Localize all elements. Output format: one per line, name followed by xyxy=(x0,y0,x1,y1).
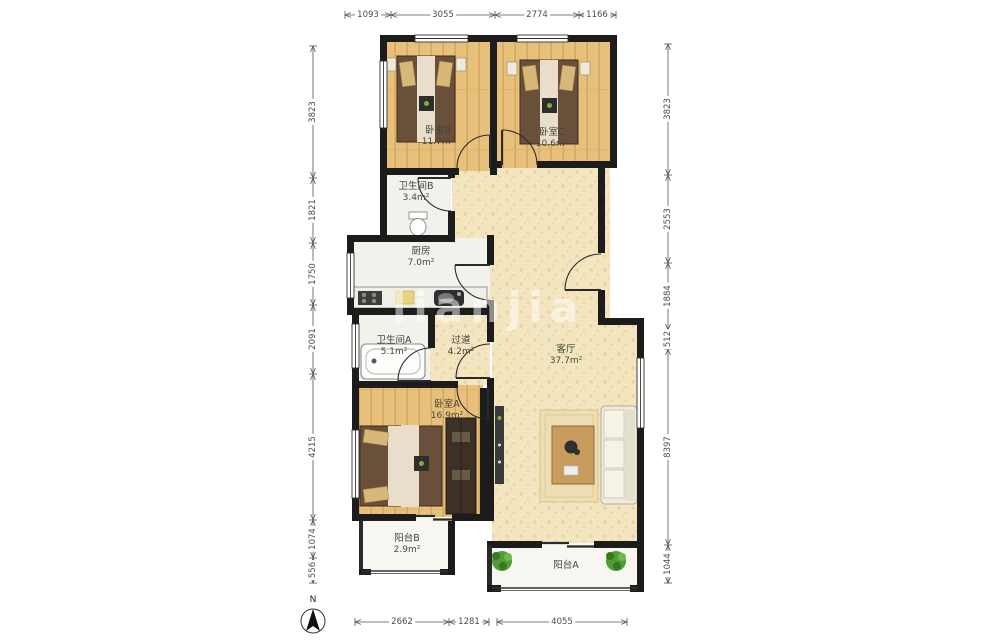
dimension-label: 3055 xyxy=(430,10,456,20)
floorplan-drawing xyxy=(0,0,996,641)
dimension-label: 2774 xyxy=(524,10,550,20)
dimension-label: 1044 xyxy=(663,551,673,577)
room-label-living: 客厅 37.7m² xyxy=(550,344,582,368)
dimension-label: 1074 xyxy=(308,526,318,552)
dimension-label: 556 xyxy=(308,560,318,580)
floorplan-page: lianjia N 卧室B 11.7m² 卧室C 10.6m² 卫生间B 3.4… xyxy=(0,0,996,641)
north-label: N xyxy=(310,595,317,605)
wardrobe-icon xyxy=(446,418,476,514)
room-label-balcony-b: 阳台B 2.9m² xyxy=(394,533,421,557)
dimension-label: 8397 xyxy=(663,434,673,460)
room-label-passage: 过道 4.2m² xyxy=(448,335,475,359)
toilet-icon xyxy=(409,212,427,236)
kitchen-counter xyxy=(352,287,487,308)
room-label-bath-b: 卫生间B 3.4m² xyxy=(398,181,433,205)
dimension-label: 1281 xyxy=(456,617,482,627)
dimension-label: 3823 xyxy=(663,96,673,122)
dimension-label: 1093 xyxy=(355,10,381,20)
dimension-label: 2662 xyxy=(389,617,415,627)
room-label-kitchen: 厨房 7.0m² xyxy=(408,246,435,270)
dimension-label: 1750 xyxy=(308,261,318,287)
dimension-label: 3823 xyxy=(308,99,318,125)
sofa-icon xyxy=(601,406,637,504)
dimension-label: 1821 xyxy=(308,197,318,223)
dimension-label: 2091 xyxy=(308,326,318,352)
room-label-bath-a: 卫生间A 5.1m² xyxy=(377,335,412,359)
room-label-bedroom-c: 卧室C 10.6m² xyxy=(536,127,568,151)
dimension-label: 1166 xyxy=(584,10,610,20)
dimension-label: 4215 xyxy=(308,434,318,460)
plant-icon xyxy=(492,551,512,571)
stove-icon xyxy=(358,291,382,305)
dimension-label: 2553 xyxy=(663,206,673,232)
cutting-board-icon xyxy=(396,291,414,304)
north-arrow xyxy=(301,609,325,633)
room-label-balcony-a: 阳台A xyxy=(553,560,579,572)
room-label-bedroom-b: 卧室B 11.7m² xyxy=(422,125,454,149)
dimension-label: 512 xyxy=(663,329,673,349)
tv-cabinet-icon xyxy=(495,406,504,484)
coffee-table-icon xyxy=(552,426,594,484)
room-label-bedroom-a: 卧室A 16.9m² xyxy=(431,399,463,423)
dimension-label: 1884 xyxy=(663,283,673,309)
dimension-label: 4055 xyxy=(549,617,575,627)
plant-icon xyxy=(606,551,626,571)
bed-a-icon xyxy=(360,425,442,507)
